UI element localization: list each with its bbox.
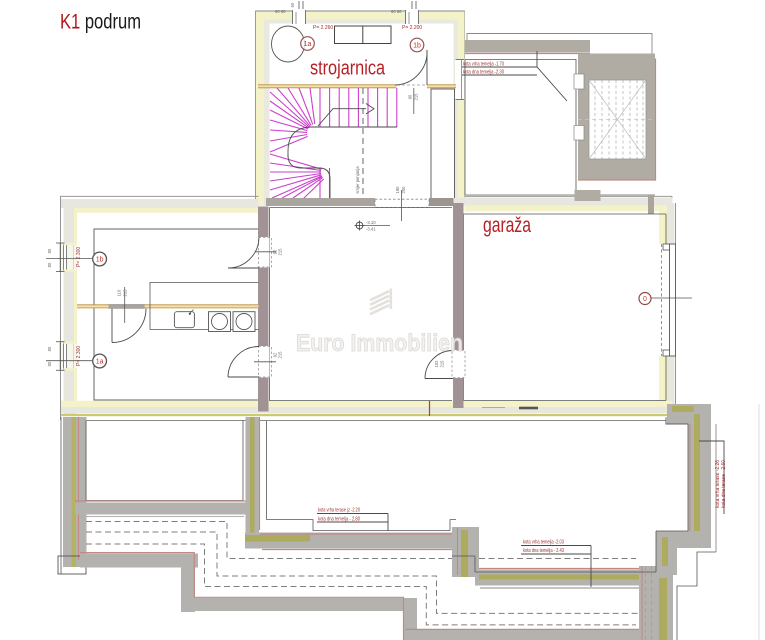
svg-text:90: 90 [408,94,413,99]
svg-text:215: 215 [123,289,128,297]
svg-text:60 60: 60 60 [275,9,286,14]
svg-text:smjer penjanja: smjer penjanja [355,166,360,194]
svg-text:-3.41: -3.41 [366,227,376,232]
svg-text:1b: 1b [413,43,421,50]
svg-text:kota dna temelja - 2.43: kota dna temelja - 2.43 [523,548,564,554]
svg-text:80: 80 [47,248,52,253]
svg-text:80: 80 [47,361,52,366]
svg-text:kota vrha temelja -2.03: kota vrha temelja -2.03 [523,540,564,546]
svg-text:garaža: garaža [483,214,531,237]
svg-text:215: 215 [414,93,419,101]
svg-text:60 60: 60 60 [391,9,402,14]
svg-text:1a: 1a [304,41,312,48]
svg-text:P= 2.260: P= 2.260 [313,25,333,31]
svg-text:-3.10: -3.10 [366,220,376,225]
svg-text:strojarnica: strojarnica [310,58,386,80]
svg-text:P= 2.300: P= 2.300 [76,346,82,366]
svg-text:kota dna temelja -2.30: kota dna temelja -2.30 [463,70,504,76]
svg-text:kota vrha temelja -1.70: kota vrha temelja -1.70 [463,62,504,68]
svg-text:215: 215 [440,360,445,368]
svg-text:K1 podrum: K1 podrum [60,11,141,34]
svg-text:1a: 1a [96,359,104,366]
svg-text:190: 190 [395,186,400,194]
svg-text:80: 80 [47,346,52,351]
svg-text:P= 2.200: P= 2.200 [402,25,422,31]
svg-text:kota vrha terase jz -2.20: kota vrha terase jz -2.20 [318,508,360,514]
svg-text:102: 102 [434,360,439,368]
svg-text:0: 0 [643,296,647,303]
svg-text:215: 215 [278,351,283,359]
svg-text:110: 110 [117,289,122,296]
svg-text:80: 80 [47,262,52,267]
svg-text:60: 60 [290,2,295,7]
svg-text:1b: 1b [96,257,104,264]
svg-text:Euro Immobilien: Euro Immobilien [296,330,463,357]
svg-text:kota dna terase - 2.60: kota dna terase - 2.60 [721,460,727,508]
svg-text:P= 2.300: P= 2.300 [76,247,82,267]
svg-text:215: 215 [278,248,283,256]
